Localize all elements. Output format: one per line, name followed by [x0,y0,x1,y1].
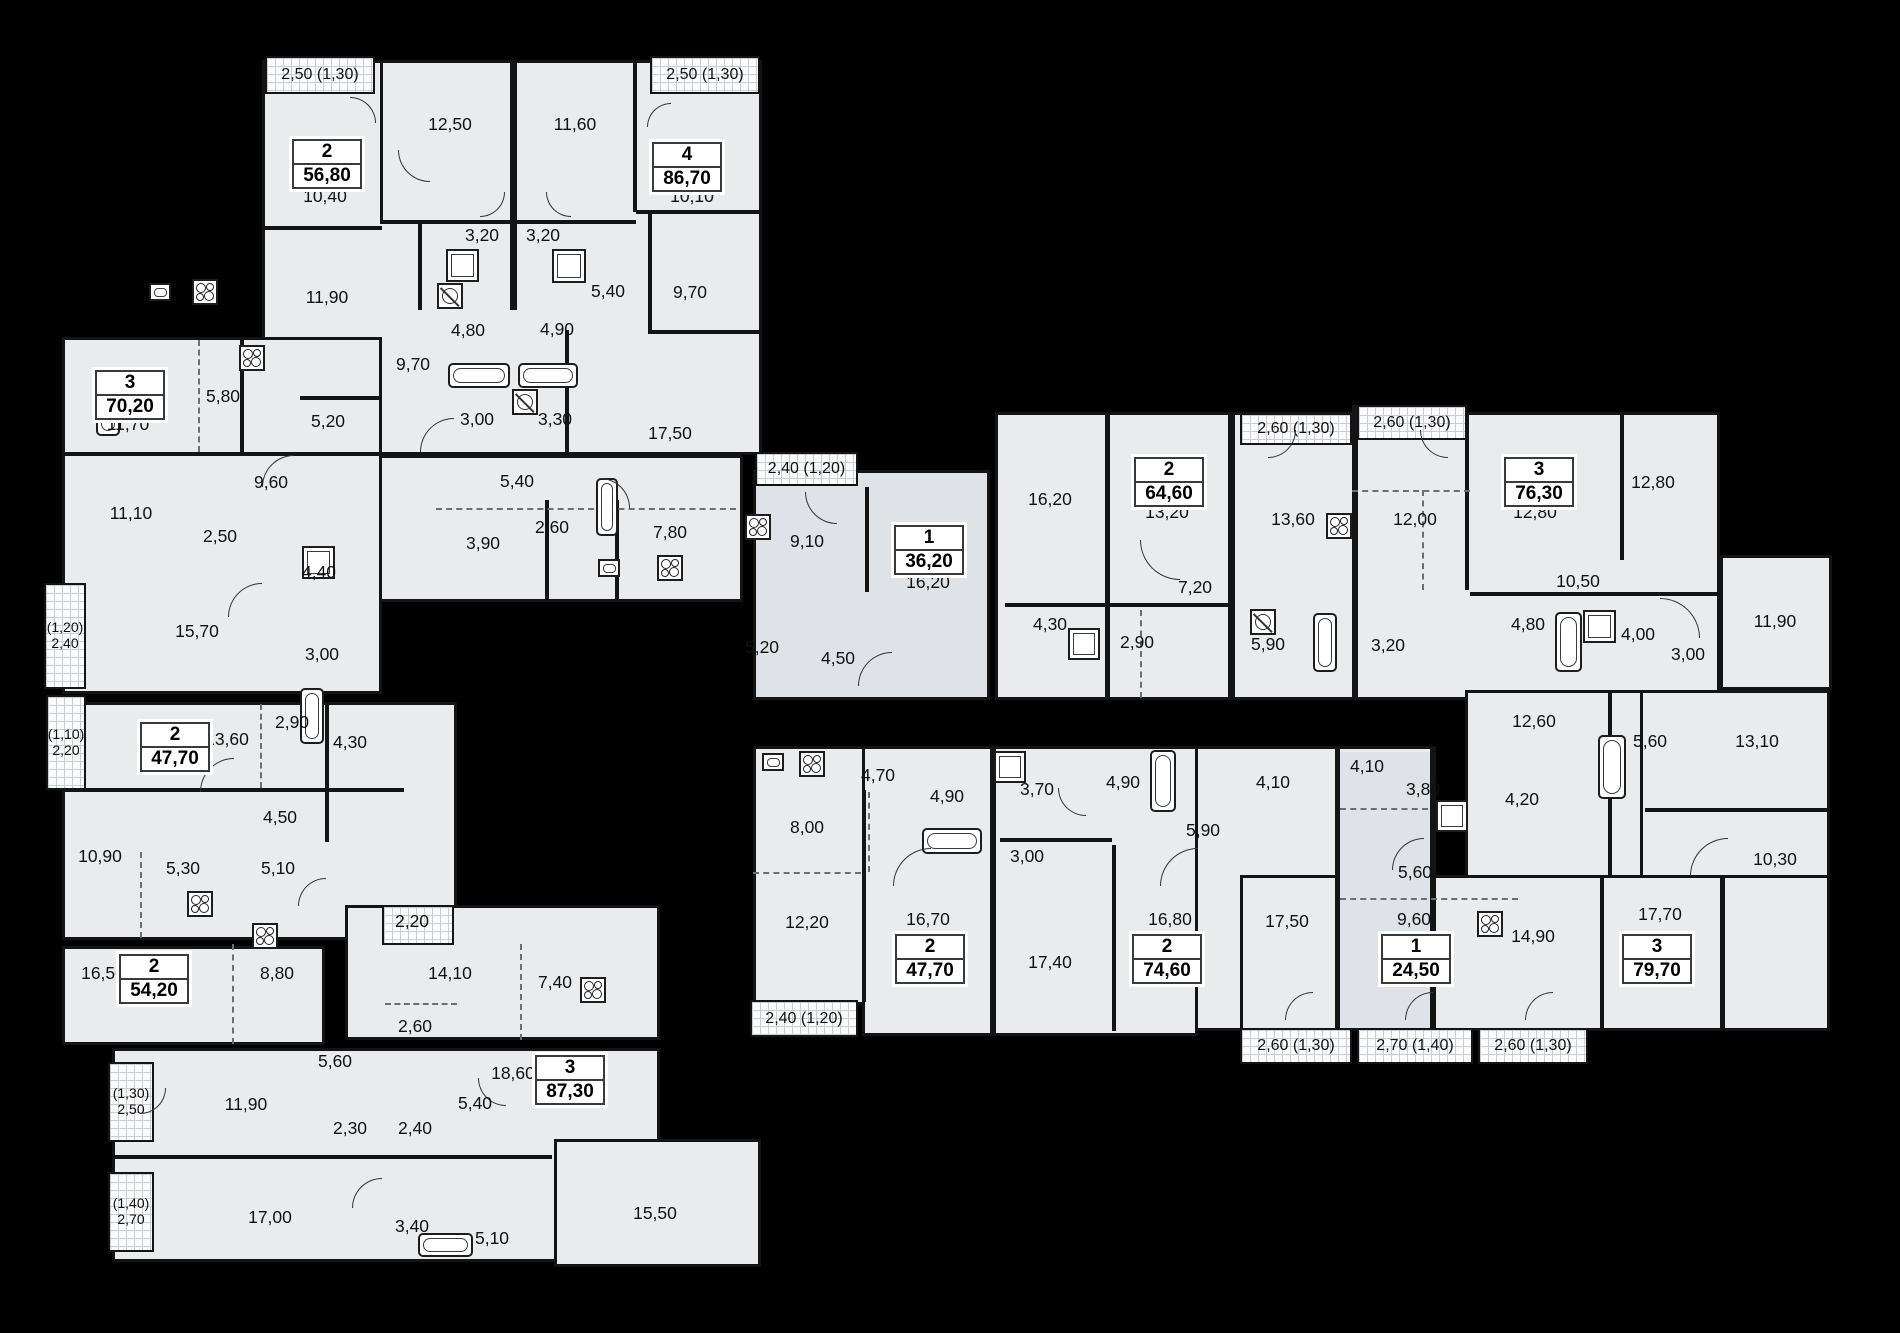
apartment-block [62,946,325,1045]
room-area-label: 3,70 [992,779,1082,800]
wall [1720,875,1725,1031]
room-area-label: 3,30 [510,409,600,430]
room-area-label: 9,60 [1369,909,1459,930]
room-area-label: 5,20 [283,411,373,432]
balcony-label: (1,10) 2,20 [48,727,85,758]
room-area-label: 4,10 [1228,772,1318,793]
room-area-label: 4,00 [1593,624,1683,645]
apartment-area: 54,20 [121,980,187,1002]
room-area-label: 2,60 [370,1016,460,1037]
balcony: 2,40 (1,20) [755,452,858,486]
apartment-badge[interactable]: 124,50 [1381,934,1451,984]
stove-icon [799,751,825,777]
apartment-type: 3 [97,372,163,396]
wall [380,452,520,456]
room-area-label: 12,20 [762,912,852,933]
apartment-area: 87,30 [537,1081,603,1103]
stove-icon [187,891,213,917]
apartment-type: 3 [1506,459,1572,483]
balcony: 2,60 (1,30) [1240,1028,1352,1064]
wall [1105,412,1110,697]
apartment-badge[interactable]: 379,70 [1622,934,1692,984]
dashed-partition [1140,610,1144,698]
wall [62,452,380,456]
room-area-label: 4,80 [423,320,513,341]
room-area-label: 4,30 [1005,614,1095,635]
shower-icon [1436,800,1468,832]
apartment-area: 64,60 [1136,483,1202,505]
balcony: 2,70 (1,40) [1357,1028,1473,1064]
room-area-label: 4,70 [833,765,923,786]
room-area-label: 5,60 [1605,731,1695,752]
apartment-type: 2 [897,936,963,960]
wall [1112,845,1116,1031]
room-area-label: 5,80 [178,386,268,407]
shower-icon [446,249,479,282]
balcony-label: 2,70 (1,40) [1376,1037,1453,1055]
room-area-label: 5,90 [1223,634,1313,655]
room-area-label: 9,60 [226,472,316,493]
dashed-partition [1340,898,1518,902]
apartment-badge[interactable]: 387,30 [535,1055,605,1105]
room-area-label: 12,80 [1608,472,1698,493]
room-area-label: 5,40 [472,471,562,492]
room-area-label: 10,40 [280,186,370,207]
apartment-type: 2 [1134,936,1200,960]
apartment-type: 1 [896,527,962,551]
wall [262,226,382,230]
apartment-area: 56,80 [294,165,360,187]
room-area-label: 4,90 [1078,772,1168,793]
room-area-label: 15,50 [610,1203,700,1224]
room-area-label: 4,50 [793,648,883,669]
room-area-label: 5,10 [447,1228,537,1249]
apartment-area: 47,70 [142,748,208,770]
wall [112,1155,552,1159]
balcony-label: 2,50 (1,30) [666,66,743,84]
room-area-label: 3,40 [367,1216,457,1237]
shower-icon [552,249,586,283]
room-area-label: 16,20 [883,572,973,593]
apartment-type: 2 [294,141,360,165]
stove-icon [252,923,278,949]
apartment-area: 47,70 [897,960,963,982]
balcony: 2,60 (1,30) [1478,1028,1588,1064]
room-area-label: 14,90 [1488,926,1578,947]
vent-icon [437,283,463,309]
wall [1335,746,1340,1030]
room-area-label: 2,50 [175,526,265,547]
wall [300,396,380,400]
stove-icon [192,279,218,305]
balcony-label: 2,40 (1,20) [765,1010,842,1028]
room-area-label: 3,80 [1378,779,1468,800]
room-area-label: 17,70 [1615,904,1705,925]
floor-plan: 2,50 (1,30)2,50 (1,30)(1,20) 2,40(1,10) … [0,0,1900,1333]
room-area-label: 5,60 [1370,862,1460,883]
wall [1645,808,1830,812]
room-area-label: 5,40 [563,281,653,302]
room-area-label: 9,70 [645,282,735,303]
room-area-label: 11,90 [1730,611,1820,632]
apartment-type: 2 [142,724,208,748]
room-area-label: 4,40 [274,562,364,583]
apartment-type: 1 [1383,936,1449,960]
balcony: 2,40 (1,20) [750,1000,858,1037]
wall [1005,603,1230,607]
room-area-label: 4,90 [902,786,992,807]
room-area-label: 3,20 [1343,635,1433,656]
apartment-badge[interactable]: 136,20 [894,525,964,575]
wall [1465,412,1469,590]
room-area-label: 9,70 [368,354,458,375]
room-area-label: 4,10 [1322,756,1412,777]
room-area-label: 7,20 [1150,577,1240,598]
room-area-label: 5,90 [1158,820,1248,841]
room-area-label: 16,80 [1125,909,1215,930]
bathtub-icon [518,363,578,388]
vent-icon [1250,609,1276,635]
bathtub-icon [1313,613,1337,672]
dashed-partition [385,1003,457,1007]
room-area-label: 17,40 [1005,952,1095,973]
room-area-label: 2,90 [1092,632,1182,653]
room-area-label: 16,20 [1005,489,1095,510]
room-area-label: 4,20 [1477,789,1567,810]
dashed-partition [1422,490,1426,590]
bathtub-icon [922,828,982,854]
wall [1470,592,1722,596]
sink-icon [762,753,784,771]
sink-icon [598,559,620,577]
wall [510,62,517,310]
wall [862,790,866,1002]
apartment-badge[interactable]: 256,80 [292,139,362,189]
wall [648,330,762,334]
wall [565,330,569,456]
room-area-label: 14,10 [405,963,495,984]
balcony-label: 2,60 (1,30) [1494,1037,1571,1055]
apartment-area: 86,70 [654,168,720,190]
room-area-label: 3,20 [498,225,588,246]
stove-icon [657,555,683,581]
room-area-label: 12,60 [1489,711,1579,732]
balcony: (1,20) 2,40 [44,583,86,689]
room-area-label: 17,50 [625,423,715,444]
balcony-label: 2,50 (1,30) [281,66,358,84]
room-area-label: 12,50 [405,114,495,135]
room-area-label: 10,30 [1730,849,1820,870]
apartment-type: 2 [121,956,187,980]
apartment-type: 2 [1136,459,1202,483]
balcony: 2,50 (1,30) [265,56,375,94]
room-area-label: 11,10 [86,503,176,524]
balcony-label: 2,40 (1,20) [768,460,845,478]
room-area-label: 7,40 [510,972,600,993]
room-area-label: 5,30 [138,858,228,879]
room-area-label: 3,00 [1643,644,1733,665]
room-area-label: 10,90 [55,846,145,867]
room-area-label: 4,80 [1483,614,1573,635]
dashed-partition [1352,490,1470,494]
apartment-type: 4 [654,144,720,168]
apartment-area: 76,30 [1506,483,1572,505]
apartment-badge[interactable]: 264,60 [1134,457,1204,507]
dashed-partition [753,872,861,876]
apartment-area: 24,50 [1383,960,1449,982]
apartment-badge[interactable]: 370,20 [95,370,165,420]
apartment-area: 70,20 [97,396,163,418]
apartment-badge[interactable]: 254,20 [119,954,189,1004]
apartment-area: 74,60 [1134,960,1200,982]
room-area-label: 5,10 [233,858,323,879]
room-area-label: 3,00 [277,644,367,665]
room-area-label: 13,60 [1248,509,1338,530]
room-area-label: 2,90 [247,712,337,733]
wall [418,224,422,310]
room-area-label: 9,10 [762,531,852,552]
apartment-type: 3 [537,1057,603,1081]
room-area-label: 10,50 [1533,571,1623,592]
wall [636,210,762,214]
balcony: 2,60 (1,30) [1357,405,1467,440]
apartment-type: 3 [1624,936,1690,960]
room-area-label: 4,90 [512,319,602,340]
balcony-label: (1,40) 2,70 [113,1196,150,1227]
apartment-area: 36,20 [896,551,962,573]
sink-icon [149,283,171,301]
room-area-label: 5,40 [430,1093,520,1114]
apartment-badge[interactable]: 247,70 [895,934,965,984]
wall [545,500,549,600]
room-area-label: 3,00 [982,846,1072,867]
apartment-badge[interactable]: 274,60 [1132,934,1202,984]
room-area-label: 11,90 [282,287,372,308]
dashed-partition [436,508,736,512]
room-area-label: 13,10 [1712,731,1802,752]
room-area-label: 11,90 [201,1094,291,1115]
wall [1228,412,1235,700]
room-area-label: 4,30 [305,732,395,753]
room-area-label: 17,00 [225,1207,315,1228]
apartment-area: 79,70 [1624,960,1690,982]
apartment-badge[interactable]: 247,70 [140,722,210,772]
balcony-label: (1,20) 2,40 [47,620,84,651]
stove-icon [239,345,265,371]
wall [1600,875,1604,1031]
wall [380,62,383,222]
balcony: (1,40) 2,70 [108,1172,154,1252]
room-area-label: 15,70 [152,621,242,642]
dashed-partition [1340,808,1428,812]
room-area-label: 3,00 [432,409,522,430]
room-area-label: 2,40 [370,1118,460,1139]
apartment-badge[interactable]: 376,30 [1504,457,1574,507]
balcony: (1,10) 2,20 [46,695,86,790]
wall [633,62,637,212]
room-area-label: 11,60 [530,114,620,135]
apartment-badge[interactable]: 486,70 [652,142,722,192]
room-area-label: 8,80 [232,963,322,984]
balcony: 2,50 (1,30) [650,56,760,94]
balcony-label: 2,60 (1,30) [1373,414,1450,432]
wall [648,214,652,332]
room-area-label: 2,20 [367,911,457,932]
room-area-label: 16,70 [883,909,973,930]
balcony: 2,60 (1,30) [1240,413,1352,445]
room-area-label: 7,80 [625,522,715,543]
balcony-label: 2,60 (1,30) [1257,1037,1334,1055]
dashed-partition [232,944,236,1044]
room-area-label: 2,60 [507,517,597,538]
room-area-label: 5,60 [290,1051,380,1072]
dashed-partition [868,792,872,872]
room-area-label: 12,00 [1370,509,1460,530]
wall [1000,838,1112,842]
wall [865,487,869,592]
room-area-label: 4,50 [235,807,325,828]
room-area-label: 8,00 [762,817,852,838]
room-area-label: 17,50 [1242,911,1332,932]
